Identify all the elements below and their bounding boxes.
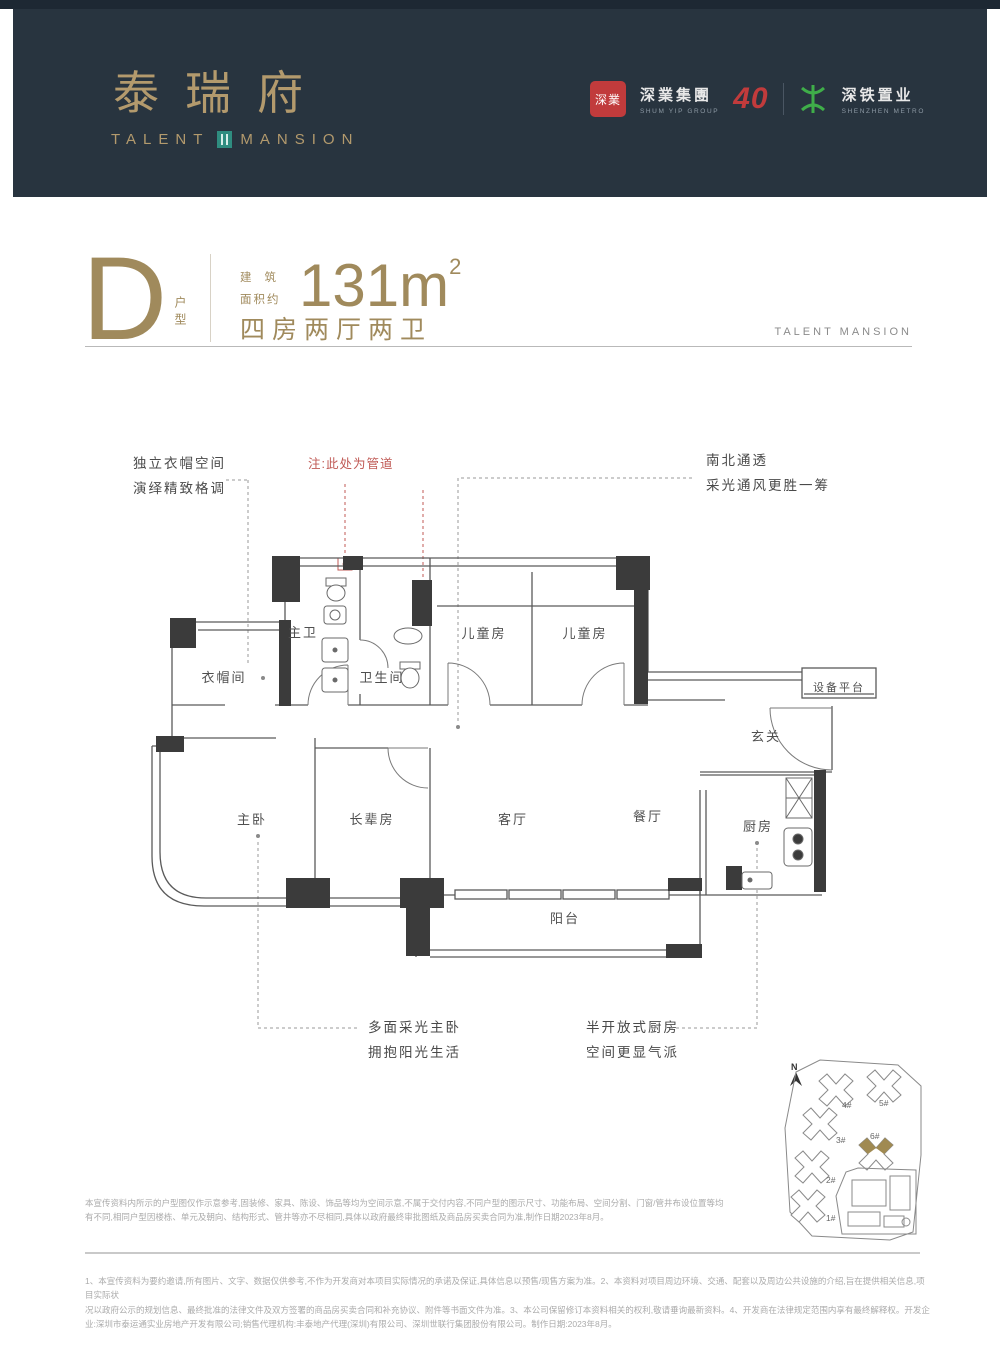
door-arcs [308,640,832,788]
site-label-1: 1# [826,1213,836,1223]
room-label-master-bath: 主卫 [288,625,318,640]
site-label-6: 6# [870,1131,880,1141]
room-label-bath2: 卫生间 [359,670,404,685]
room-label-foyer: 玄关 [751,729,781,744]
disclaimer-bottom-line2: 况以政府公示的规划信息、最终批准的法律文件及双方签署的商品房买卖合同和补充协议、… [85,1303,930,1332]
room-label-kids1: 儿童房 [461,626,506,641]
floorplan-canvas: 主卫 衣帽间 卫生间 儿童房 儿童房 设备平台 玄关 主卧 长辈房 客厅 餐厅 … [0,0,1000,1366]
floorplan-walls [152,558,876,957]
site-label-4: 4# [842,1100,852,1110]
room-label-closet: 衣帽间 [201,670,246,685]
room-label-equipment: 设备平台 [813,680,865,694]
disclaimer-bottom: 1、本宣传资料为要约邀请,所有图片、文字、数据仅供参考,不作为开发商对本项目实际… [85,1274,930,1332]
site-label-5: 5# [879,1098,889,1108]
room-label-balcony: 阳台 [550,911,580,926]
poster-page: 泰瑞府 TALENT MANSION 深業 深業集團 SHUM YIP GROU… [0,0,1000,1366]
disclaimer-bottom-line1: 1、本宣传资料为要约邀请,所有图片、文字、数据仅供参考,不作为开发商对本项目实际… [85,1274,930,1303]
room-label-kitchen: 厨房 [743,819,773,834]
disclaimer-top: 本宣传资料内所示的户型图仅作示意参考,固装修、家具、陈设、饰品等均为空间示意,不… [85,1196,725,1225]
room-label-dining: 餐厅 [633,809,663,824]
room-label-kids2: 儿童房 [562,626,607,641]
north-label: N [791,1062,798,1072]
site-plan: N 4 [785,1060,921,1240]
site-label-2: 2# [826,1175,836,1185]
site-label-3: 3# [836,1135,846,1145]
bottom-divider-rule [85,1252,920,1254]
site-podium [836,1168,916,1234]
room-label-master-bed: 主卧 [237,812,267,827]
room-label-living: 客厅 [498,812,528,827]
room-label-elder: 长辈房 [349,812,394,827]
